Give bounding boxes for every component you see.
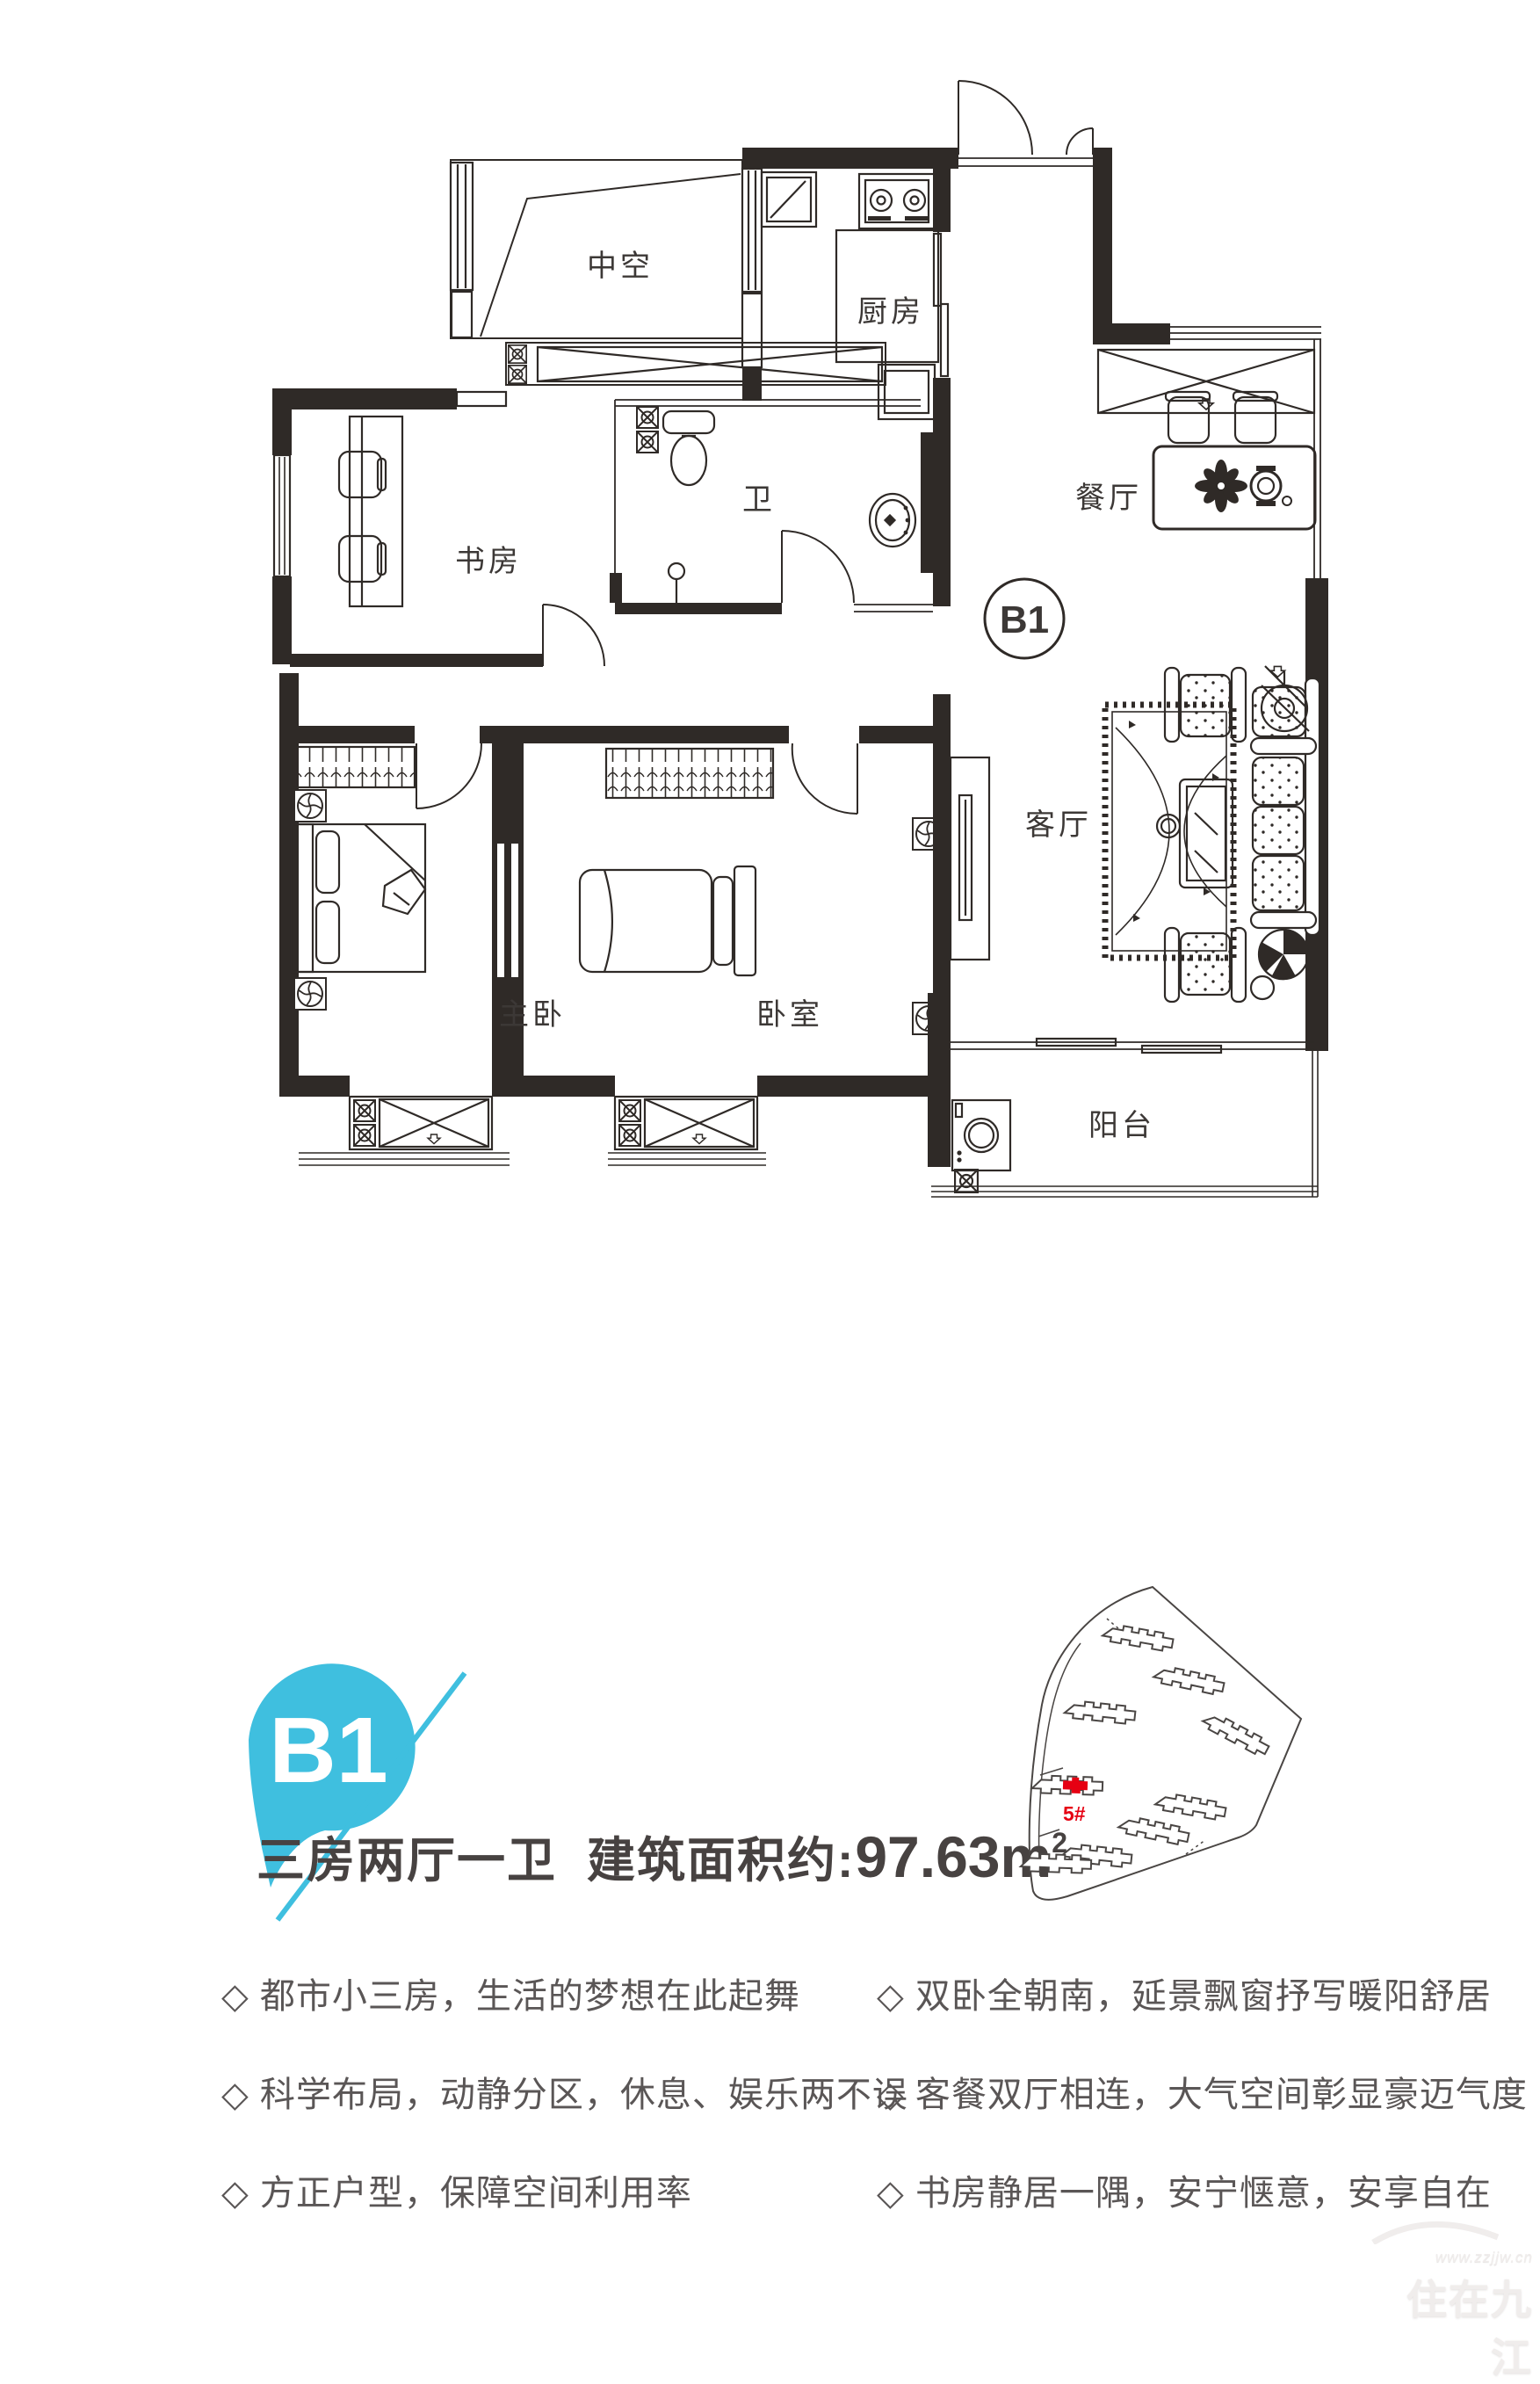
stove-icon (859, 174, 935, 228)
area-prefix: 建筑面积约: (587, 1833, 855, 1888)
side-stool (1157, 815, 1180, 837)
wall (742, 148, 951, 169)
shower-icon (669, 563, 684, 603)
room-study (272, 388, 604, 667)
label-dining: 餐厅 (1075, 482, 1142, 515)
unit-circle-label: B1 (1000, 598, 1049, 641)
washing-machine-icon (952, 1100, 1010, 1170)
label-living: 客厅 (1025, 808, 1092, 842)
highlighted-building-label: 5# (1063, 1802, 1086, 1825)
floor-plan: 中空 厨房 卫 书房 餐厅 客厅 主卧 卧室 阳台 B1 (0, 0, 1540, 1283)
bed (580, 866, 756, 975)
room-master (292, 747, 425, 1010)
watermark-roof-icon (1366, 2214, 1533, 2244)
room-bedroom (580, 749, 944, 1034)
label-study: 书房 (455, 545, 522, 578)
room-balcony (928, 993, 1318, 1197)
desk (350, 417, 402, 606)
teapot-icon (1251, 466, 1291, 506)
watermark-name: 住在九江 (1366, 2268, 1533, 2384)
highlighted-building (1032, 1775, 1103, 1795)
label-bedroom: 卧室 (756, 998, 823, 1032)
features-left: ◇ 都市小三房，生活的梦想在此起舞 ◇ 科学布局，动静分区，休息、娱乐两不误 ◇… (221, 1979, 908, 2274)
label-balcony: 阳台 (1088, 1109, 1155, 1142)
kitchen-sink-icon (878, 365, 935, 419)
flower-icon (1195, 460, 1247, 512)
coffee-table (1180, 779, 1233, 888)
toilet-icon (663, 411, 714, 485)
feature-item: ◇ 方正户型，保障空间利用率 (221, 2176, 908, 2211)
study-door (543, 605, 604, 666)
wardrobe (292, 747, 415, 787)
badge-label: B1 (269, 1699, 388, 1802)
plant-icon (1251, 930, 1308, 999)
sideboard-cabinet (1098, 350, 1314, 413)
layout-text: 三房两厅一卫 (257, 1833, 557, 1888)
tv-cabinet (951, 757, 989, 960)
label-bath: 卫 (742, 483, 776, 517)
site-plan: 5# (1001, 1573, 1335, 1942)
watermark-url: www.zzjjw.cn (1366, 2249, 1533, 2266)
master-door (416, 743, 481, 808)
unit-badge: B1 (237, 1652, 483, 1942)
master-bed (292, 824, 425, 972)
sofa (1251, 678, 1319, 935)
washbasin-icon (870, 494, 915, 547)
area-value: 97.63 (855, 1824, 1000, 1889)
feature-item: ◇ 科学布局，动静分区，休息、娱乐两不误 (221, 2077, 908, 2112)
label-void: 中空 (587, 250, 654, 283)
feature-item: ◇ 书房静居一隅，安宁惬意，安享自在 (877, 2176, 1528, 2211)
feature-item: ◇ 都市小三房，生活的梦想在此起舞 (221, 1979, 908, 2014)
room-dining (1098, 327, 1321, 578)
label-master: 主卧 (499, 998, 566, 1032)
fridge-icon (762, 172, 816, 227)
unit-summary: 三房两厅一卫建筑面积约:97.63m2 (257, 1821, 1069, 1891)
bath-door (782, 531, 854, 603)
label-kitchen: 厨房 (857, 295, 924, 329)
bedroom-door (792, 743, 857, 814)
feature-item: ◇ 客餐双厅相连，大气空间彰显豪迈气度 (877, 2077, 1528, 2112)
wardrobe (606, 749, 773, 798)
bedroom-walls (279, 673, 951, 1097)
bay-window (299, 1097, 510, 1165)
watermark: www.zzjjw.cn 住在九江 (1366, 2214, 1533, 2384)
entry-door (951, 81, 1170, 344)
room-bath (610, 400, 944, 614)
bay-window (608, 1097, 766, 1165)
feature-item: ◇ 双卧全朝南，延景飘窗抒写暖阳舒居 (877, 1979, 1528, 2014)
